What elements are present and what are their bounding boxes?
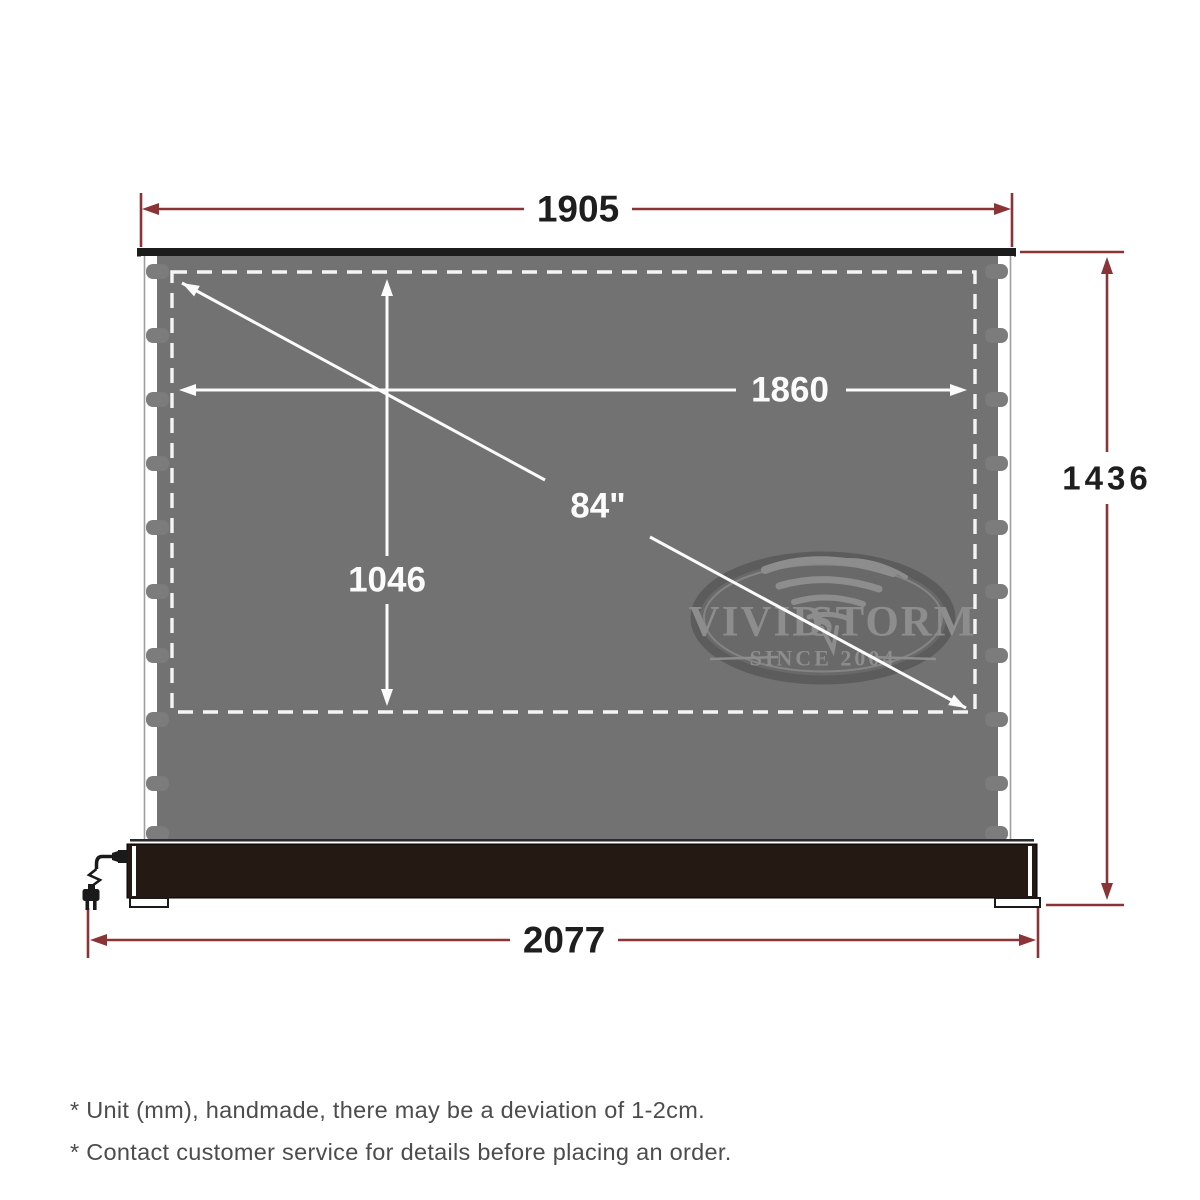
tab [146, 456, 169, 471]
top-slat-bar [137, 248, 1016, 257]
tab [985, 776, 1008, 791]
diagram-drawing: VIVID STORM SINCE 2004 [0, 0, 1200, 1200]
power-plug-icon [83, 850, 129, 910]
tab [146, 584, 169, 599]
total-height-label: 1436 [1062, 460, 1151, 497]
housing-top-edge [130, 839, 1034, 842]
tab [146, 776, 169, 791]
housing-left-seam [132, 846, 136, 896]
tab [146, 648, 169, 663]
footnote-contact: * Contact customer service for details b… [70, 1139, 732, 1166]
tab [985, 826, 1008, 841]
tab [985, 328, 1008, 343]
screen-fabric [157, 256, 998, 841]
tab [985, 584, 1008, 599]
housing-body [127, 844, 1037, 898]
right-tension-strip [998, 256, 1014, 841]
right-foot [995, 898, 1040, 907]
screen-assembly [137, 248, 1016, 841]
tab [985, 648, 1008, 663]
tab [146, 328, 169, 343]
tab [985, 520, 1008, 535]
tab [985, 712, 1008, 727]
footnote-unit: * Unit (mm), handmade, there may be a de… [70, 1097, 705, 1124]
screen-dimension-diagram: VIVID STORM SINCE 2004 [0, 0, 1200, 1200]
tab [985, 264, 1008, 279]
tab [146, 712, 169, 727]
viewing-width-label: 1860 [751, 371, 829, 410]
housing-right-seam [1028, 846, 1032, 896]
base-housing [127, 839, 1040, 907]
tab [146, 392, 169, 407]
left-foot [130, 898, 168, 907]
tab [146, 826, 169, 841]
tab [985, 392, 1008, 407]
right-dimension [1020, 252, 1124, 905]
diagonal-label: 84" [570, 487, 626, 526]
base-width-label: 2077 [523, 920, 605, 961]
tab [146, 520, 169, 535]
tab [985, 456, 1008, 471]
tab [146, 264, 169, 279]
left-tension-strip [141, 256, 157, 841]
viewing-height-label: 1046 [348, 561, 426, 600]
top-width-label: 1905 [537, 189, 619, 230]
